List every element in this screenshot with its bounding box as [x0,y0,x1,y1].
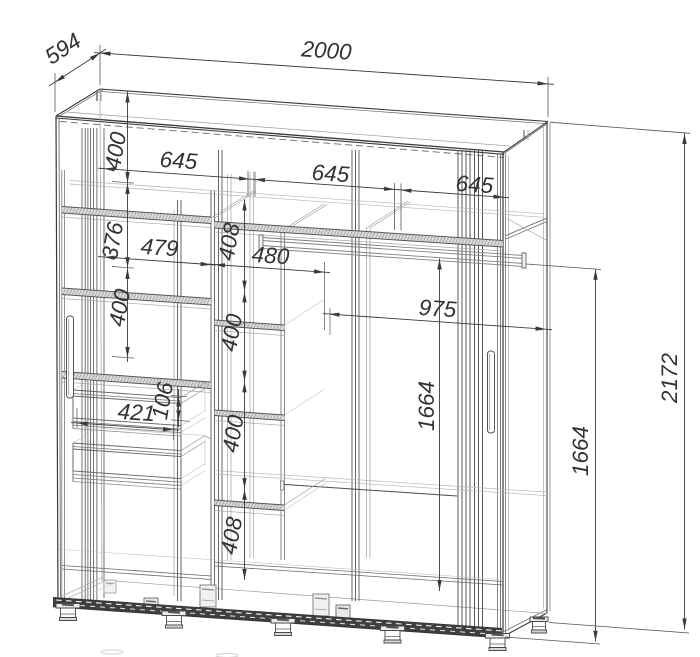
svg-text:480: 480 [251,242,291,270]
svg-text:645: 645 [311,160,351,188]
svg-text:1664: 1664 [414,381,439,431]
svg-text:2000: 2000 [300,36,353,65]
svg-text:645: 645 [159,147,199,175]
svg-text:1664: 1664 [568,426,593,476]
svg-text:975: 975 [418,295,458,323]
svg-text:2172: 2172 [657,352,682,404]
svg-text:645: 645 [455,171,495,199]
svg-text:479: 479 [140,234,180,262]
